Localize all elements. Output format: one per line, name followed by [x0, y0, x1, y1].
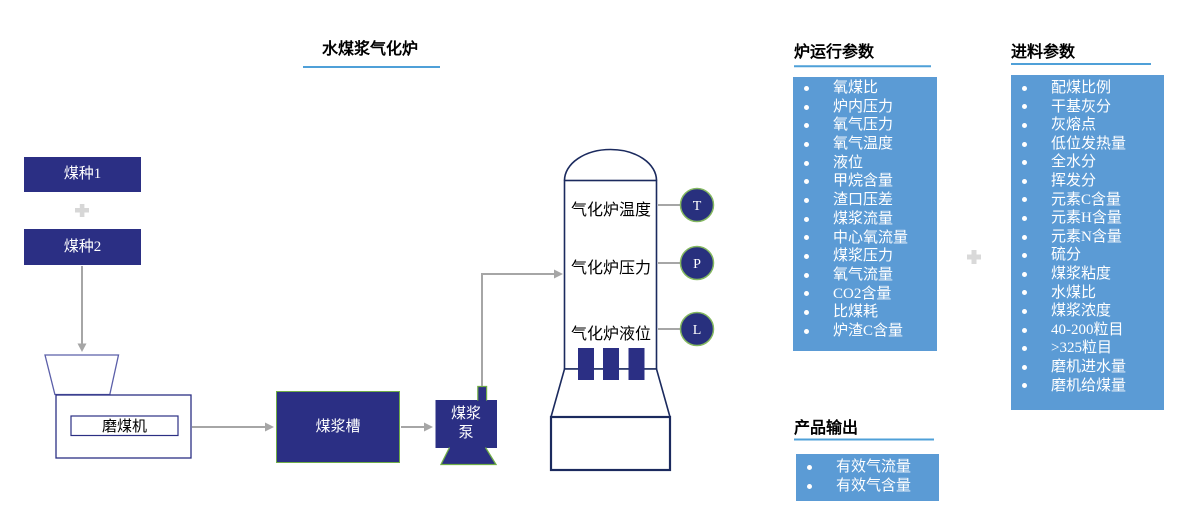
svg-text:L: L [693, 323, 702, 338]
svg-text:T: T [693, 199, 702, 214]
svg-text:P: P [693, 257, 701, 272]
